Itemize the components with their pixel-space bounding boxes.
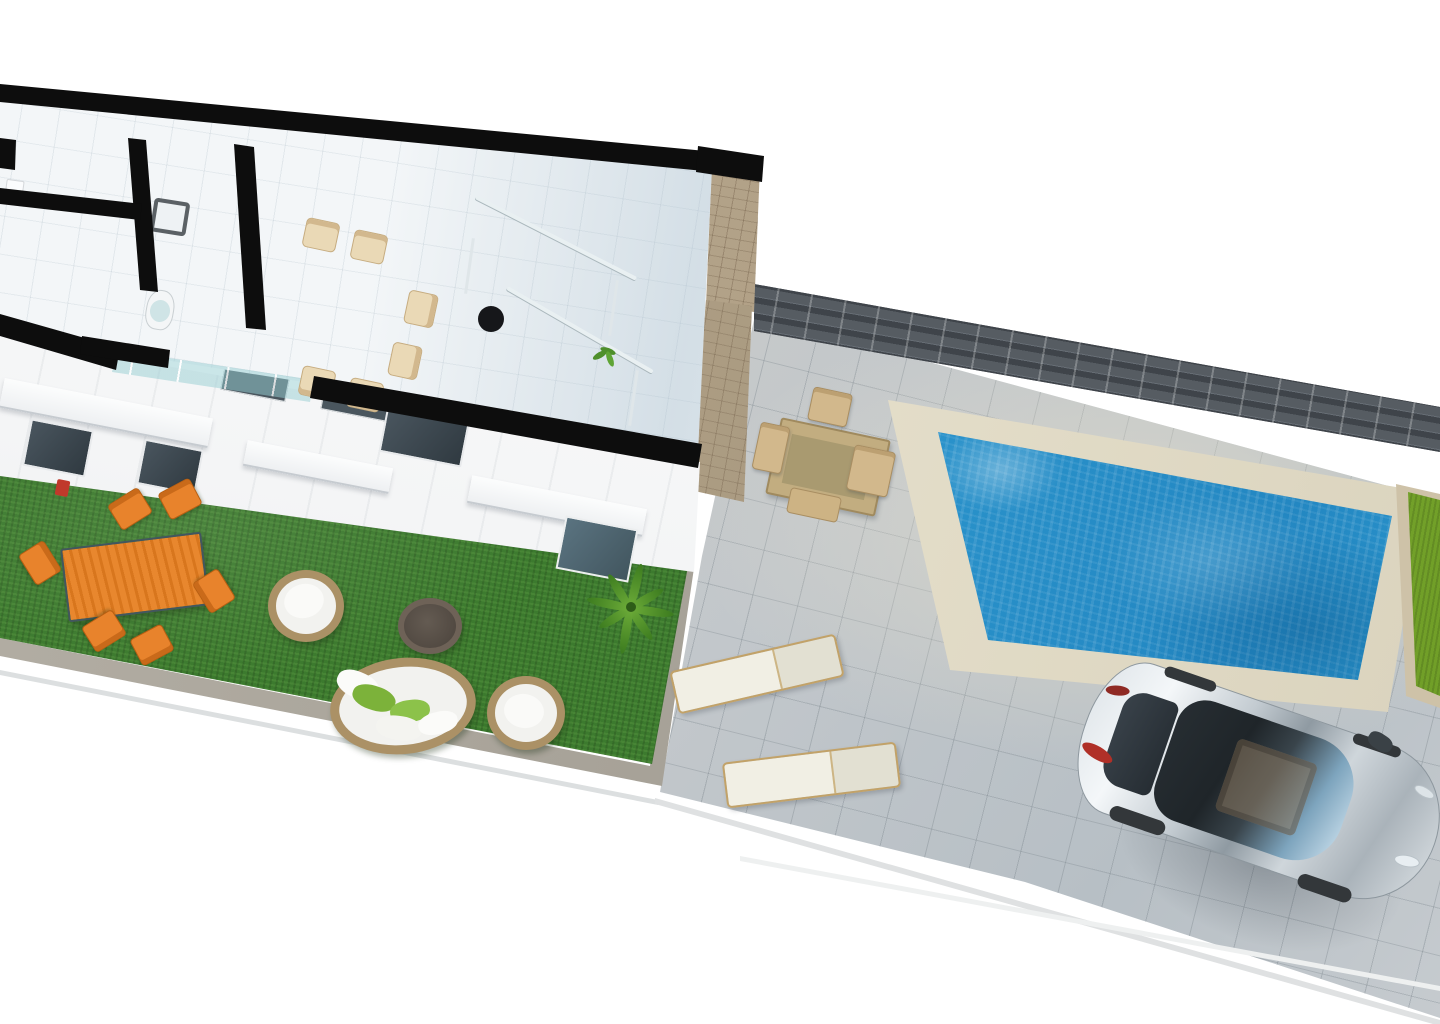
indoor-plant: [592, 346, 618, 366]
plant-center: [626, 602, 636, 612]
office-chair: [478, 306, 504, 332]
floorplan-render: Aerial 3D architectural render of a sing…: [0, 0, 1440, 1024]
round-ottoman: [398, 598, 462, 654]
bathroom-sink: [150, 197, 191, 236]
